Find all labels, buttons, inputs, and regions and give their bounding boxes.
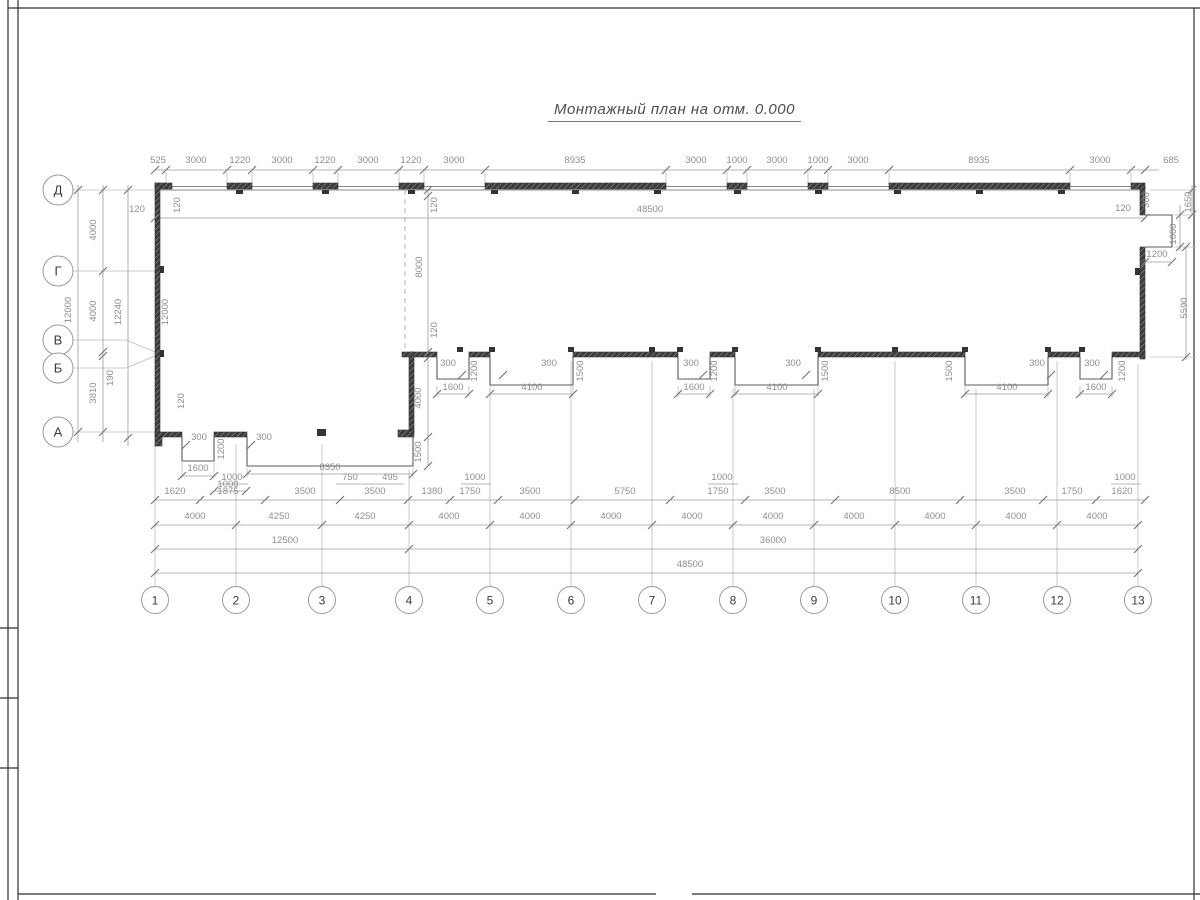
- drawing-sheet: Монтажный план на отм. 0.000 52530001220…: [0, 0, 1200, 900]
- axis-label: 11: [970, 593, 983, 607]
- dim-label: 300: [191, 432, 207, 443]
- dim-label: 12240: [113, 299, 124, 325]
- dim-label: 120: [1115, 203, 1131, 214]
- axis-label: 3: [319, 593, 326, 607]
- dim-label: 4000: [843, 511, 864, 522]
- axis-label: 10: [888, 593, 902, 607]
- dim-label: 3500: [764, 486, 785, 497]
- dim-label: 1500: [413, 441, 424, 462]
- dim-label: 1200: [469, 360, 480, 381]
- dim-label: 3000: [443, 155, 464, 166]
- dim-label: 3500: [364, 486, 385, 497]
- dim-label: 1220: [229, 155, 250, 166]
- dim-label: 1600: [187, 463, 208, 474]
- dim-label: 48500: [677, 559, 703, 570]
- dim-label: 4000: [762, 511, 783, 522]
- axis-label: В: [54, 333, 63, 348]
- dimension-ticks: [74, 166, 1196, 577]
- dim-label: 1620: [164, 486, 185, 497]
- dim-label: 4000: [88, 219, 99, 240]
- axis-label: Г: [54, 264, 61, 279]
- dim-label: 300: [440, 358, 456, 369]
- dim-label: 8935: [968, 155, 989, 166]
- axis-label: 1: [152, 593, 159, 607]
- dim-label: 1500: [820, 360, 831, 381]
- dim-label: 4000: [1086, 511, 1107, 522]
- axis-label: 7: [649, 593, 656, 607]
- axis-label: Б: [54, 361, 63, 376]
- dim-label: 5590: [1179, 297, 1190, 318]
- dim-label: 3000: [766, 155, 787, 166]
- dim-label: 1500: [575, 360, 586, 381]
- sheet-frame: [0, 0, 1200, 900]
- dim-label: 1875: [217, 486, 238, 497]
- dim-label: 1200: [216, 438, 227, 459]
- dim-label: 4250: [268, 511, 289, 522]
- dim-label: 4000: [88, 300, 99, 321]
- dim-label: 3500: [1004, 486, 1025, 497]
- dimension-labels: 5253000122030001220300012203000893530001…: [63, 155, 1194, 570]
- dim-label: 12500: [272, 535, 298, 546]
- axis-label: 8: [730, 593, 737, 607]
- dim-label: 120: [176, 393, 187, 409]
- dim-label: 8500: [889, 486, 910, 497]
- dim-label: 300: [541, 358, 557, 369]
- dim-label: 4000: [681, 511, 702, 522]
- dim-label: 1200: [709, 360, 720, 381]
- dim-label: 300: [1084, 358, 1100, 369]
- dim-label: 1380: [421, 486, 442, 497]
- dim-label: 1220: [400, 155, 421, 166]
- dim-label: 750: [342, 472, 358, 483]
- axis-label: А: [54, 425, 63, 440]
- dim-label: 300: [256, 432, 272, 443]
- dim-label: 120: [429, 322, 440, 338]
- dim-label: 1650: [1183, 191, 1194, 212]
- dim-label: 4000: [438, 511, 459, 522]
- axis-label: 12: [1050, 593, 1064, 607]
- dim-label: 1000: [711, 472, 732, 483]
- dim-label: 120: [172, 197, 183, 213]
- dim-label: 300: [683, 358, 699, 369]
- dim-label: 36000: [760, 535, 786, 546]
- dim-label: 4100: [766, 382, 787, 393]
- col-axis-circles: 12345678910111213: [142, 587, 1152, 614]
- dim-label: 3000: [847, 155, 868, 166]
- dim-label: 4100: [521, 382, 542, 393]
- dim-label: 1200: [1146, 249, 1167, 260]
- dim-label: 300: [1029, 358, 1045, 369]
- axis-label: 5: [487, 593, 494, 607]
- dim-label: 5750: [614, 486, 635, 497]
- dim-label: 495: [382, 472, 398, 483]
- dim-label: 300: [1141, 192, 1152, 208]
- dim-label: 1000: [221, 472, 242, 483]
- extension-lines: [72, 172, 1196, 586]
- dim-label: 1620: [1111, 486, 1132, 497]
- dim-label: 1000: [726, 155, 747, 166]
- dim-label: 12000: [63, 297, 74, 323]
- dim-label: 300: [785, 358, 801, 369]
- dim-label: 1500: [944, 360, 955, 381]
- dim-label: 1000: [464, 472, 485, 483]
- dim-label: 4000: [413, 387, 424, 408]
- axis-label: 13: [1131, 593, 1145, 607]
- dim-label: 4000: [519, 511, 540, 522]
- dim-label: 1000: [1114, 472, 1135, 483]
- dim-label: 1000: [807, 155, 828, 166]
- dim-label: 4000: [600, 511, 621, 522]
- dim-label: 120: [129, 204, 145, 215]
- wall-panels: [155, 183, 1145, 446]
- dim-label: 1600: [442, 382, 463, 393]
- dim-label: 1600: [1085, 382, 1106, 393]
- dim-label: 1750: [1061, 486, 1082, 497]
- dim-label: 1750: [707, 486, 728, 497]
- dim-label: 525: [150, 155, 166, 166]
- dim-label: 3810: [88, 382, 99, 403]
- dim-label: 3000: [271, 155, 292, 166]
- dim-label: 1200: [1117, 360, 1128, 381]
- wall-outlines: [182, 215, 1172, 466]
- axis-label: 2: [233, 593, 240, 607]
- axis-label: Д: [54, 183, 63, 198]
- dim-label: 1750: [459, 486, 480, 497]
- dim-label: 4100: [996, 382, 1017, 393]
- dim-label: 1600: [683, 382, 704, 393]
- dim-label: 8350: [319, 462, 340, 473]
- axis-label: 4: [406, 593, 413, 607]
- dim-label: 4000: [184, 511, 205, 522]
- dim-label: 48500: [637, 204, 663, 215]
- dim-label: 1600: [1168, 223, 1179, 244]
- dim-label: 3500: [519, 486, 540, 497]
- dim-label: 3500: [294, 486, 315, 497]
- plan-svg: 5253000122030001220300012203000893530001…: [0, 0, 1200, 900]
- axis-label: 6: [568, 593, 575, 607]
- dim-label: 8000: [414, 256, 425, 277]
- dim-label: 3000: [357, 155, 378, 166]
- dim-label: 1220: [314, 155, 335, 166]
- dim-label: 685: [1163, 155, 1179, 166]
- dim-label: 3000: [185, 155, 206, 166]
- dim-label: 4000: [1005, 511, 1026, 522]
- dim-label: 12000: [160, 299, 171, 325]
- dim-label: 8935: [564, 155, 585, 166]
- column-marks: [160, 190, 1140, 436]
- dim-label: 3000: [1089, 155, 1110, 166]
- dim-label: 190: [105, 370, 116, 386]
- axis-label: 9: [811, 593, 818, 607]
- dim-label: 4250: [354, 511, 375, 522]
- dim-label: 3000: [685, 155, 706, 166]
- dim-label: 120: [429, 197, 440, 213]
- dim-label: 4000: [924, 511, 945, 522]
